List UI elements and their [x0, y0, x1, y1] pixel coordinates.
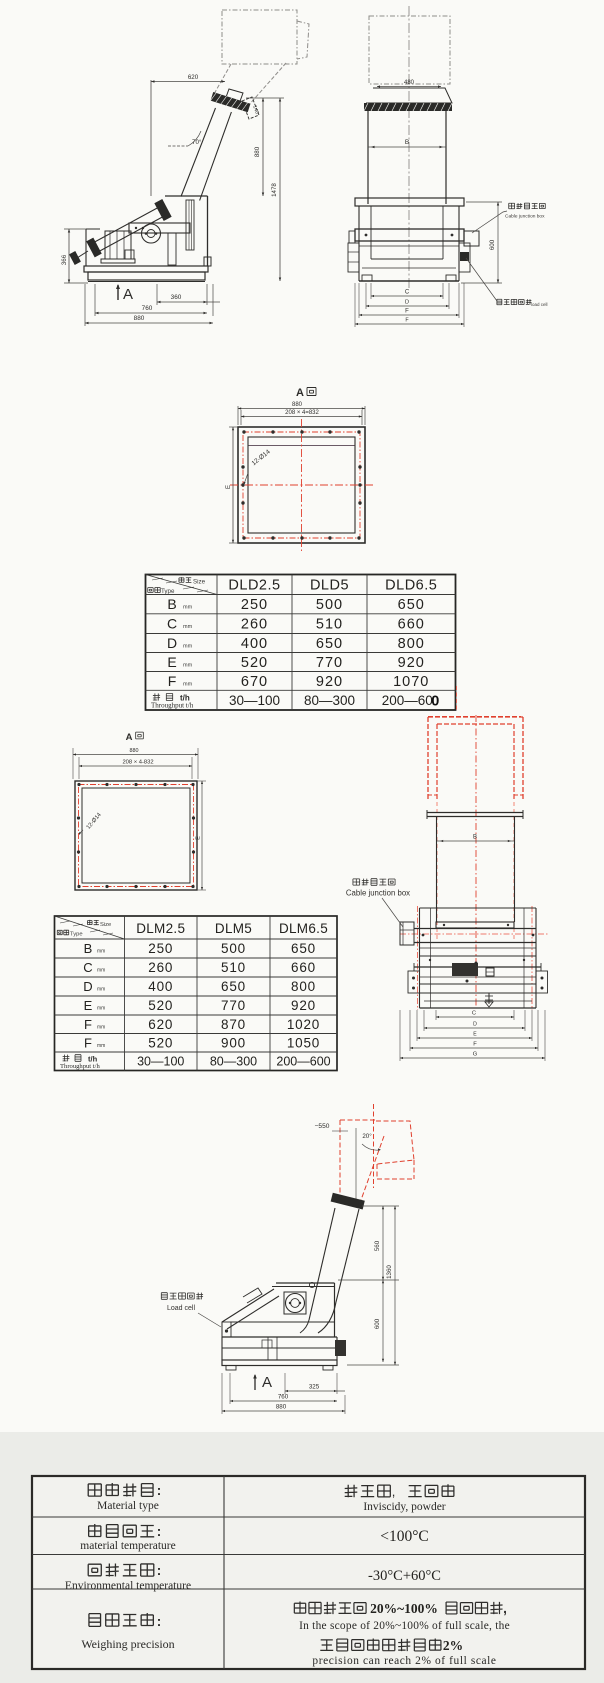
- svg-text:mm: mm: [183, 624, 193, 630]
- svg-text:1360: 1360: [386, 1265, 393, 1279]
- svg-text:80—300: 80—300: [304, 693, 355, 708]
- svg-text:880: 880: [130, 748, 139, 754]
- svg-text:mm: mm: [97, 1024, 105, 1030]
- svg-text:Cable junction box: Cable junction box: [505, 214, 545, 220]
- svg-text:870: 870: [221, 1017, 246, 1032]
- svg-text:30—100: 30—100: [137, 1055, 184, 1069]
- svg-text:mm: mm: [97, 1043, 105, 1049]
- svg-text:Size: Size: [193, 579, 206, 586]
- svg-text:B: B: [405, 139, 409, 146]
- svg-text:650: 650: [398, 597, 425, 613]
- svg-text:E: E: [473, 1032, 477, 1038]
- svg-text:G: G: [473, 1052, 478, 1058]
- svg-text:500: 500: [221, 941, 246, 956]
- svg-text:325: 325: [309, 1384, 320, 1391]
- svg-text:650: 650: [316, 636, 343, 652]
- svg-text::: :: [157, 1563, 162, 1578]
- svg-text:Throughput t/h: Throughput t/h: [60, 1063, 100, 1070]
- svg-text:208 × 4=832: 208 × 4=832: [285, 410, 319, 416]
- svg-text:mm: mm: [183, 644, 193, 650]
- svg-text:600: 600: [489, 239, 496, 250]
- svg-text:material temperature: material temperature: [80, 1540, 175, 1552]
- svg-text:mm: mm: [97, 987, 105, 993]
- svg-text:620: 620: [188, 74, 199, 81]
- svg-text:E: E: [84, 998, 93, 1013]
- svg-text:mm: mm: [97, 968, 105, 974]
- svg-text:510: 510: [316, 617, 343, 633]
- svg-text:DLM2.5: DLM2.5: [136, 921, 185, 936]
- svg-text:510: 510: [221, 960, 246, 975]
- svg-text:360: 360: [171, 294, 182, 301]
- svg-text:,: ,: [392, 1484, 396, 1499]
- svg-text:1020: 1020: [287, 1017, 320, 1032]
- svg-text:Size: Size: [100, 922, 111, 928]
- svg-text:366: 366: [61, 254, 68, 265]
- svg-text:,: ,: [503, 1601, 507, 1616]
- svg-text:D: D: [83, 979, 92, 994]
- svg-text:920: 920: [398, 655, 425, 671]
- svg-text:<100°C: <100°C: [380, 1528, 429, 1545]
- svg-text:B: B: [84, 941, 93, 956]
- svg-text:520: 520: [241, 655, 268, 671]
- svg-text::: :: [157, 1614, 162, 1629]
- svg-text:B: B: [167, 596, 176, 612]
- svg-text:600: 600: [374, 1318, 381, 1329]
- svg-text:200—60: 200—60: [382, 693, 433, 708]
- svg-text:900: 900: [221, 1035, 246, 1050]
- svg-text:660: 660: [398, 617, 425, 633]
- svg-text:660: 660: [291, 960, 316, 975]
- svg-text:D: D: [405, 300, 409, 306]
- svg-text:E: E: [196, 836, 202, 840]
- svg-text:A: A: [123, 286, 133, 303]
- svg-text:800: 800: [291, 979, 316, 994]
- svg-text:E: E: [226, 485, 232, 489]
- svg-text:260: 260: [148, 960, 173, 975]
- svg-text:DLD2.5: DLD2.5: [228, 578, 280, 594]
- svg-text:400: 400: [241, 636, 268, 652]
- svg-text:−550: −550: [315, 1123, 330, 1130]
- svg-text:A: A: [262, 1374, 272, 1391]
- svg-text:500: 500: [316, 597, 343, 613]
- svg-text:F: F: [84, 1035, 92, 1050]
- svg-text:650: 650: [291, 941, 316, 956]
- svg-text:precision can reach 2% of: precision can reach 2% of full scale: [312, 1655, 496, 1667]
- svg-text:Material type: Material type: [97, 1500, 159, 1512]
- svg-text:C: C: [405, 290, 410, 296]
- svg-text:Throughput t/h: Throughput t/h: [151, 702, 194, 710]
- svg-text:DLM5: DLM5: [215, 921, 252, 936]
- svg-text:C: C: [83, 960, 92, 975]
- svg-text:mm: mm: [183, 681, 193, 687]
- svg-text:F: F: [168, 673, 177, 689]
- svg-text:-30°C+60°C: -30°C+60°C: [368, 1568, 441, 1584]
- svg-text:DLM6.5: DLM6.5: [279, 921, 328, 936]
- svg-text:DLD5: DLD5: [310, 578, 349, 594]
- svg-text:A: A: [296, 387, 304, 399]
- svg-text:880: 880: [292, 402, 303, 408]
- svg-text:670: 670: [241, 674, 268, 690]
- svg-text:DLD6.5: DLD6.5: [385, 578, 437, 594]
- svg-text:770: 770: [316, 655, 343, 671]
- svg-text:Inviscidy, powder: Inviscidy, powder: [363, 1501, 445, 1513]
- svg-text:20°: 20°: [362, 1133, 372, 1140]
- svg-text:B: B: [473, 835, 477, 841]
- svg-text:770: 770: [221, 998, 246, 1013]
- svg-text:2%: 2%: [443, 1638, 463, 1653]
- svg-text:520: 520: [148, 998, 173, 1013]
- svg-text:260: 260: [241, 617, 268, 633]
- svg-text:mm: mm: [183, 663, 193, 669]
- svg-text::: :: [157, 1524, 162, 1539]
- svg-text:A: A: [126, 732, 133, 743]
- svg-text:F: F: [473, 1042, 477, 1048]
- svg-text:760: 760: [278, 1394, 289, 1401]
- svg-text:620: 620: [148, 1017, 173, 1032]
- svg-text:1070: 1070: [393, 674, 429, 690]
- svg-text:20%~100%: 20%~100%: [370, 1601, 438, 1616]
- svg-text:250: 250: [148, 941, 173, 956]
- svg-text:480: 480: [404, 80, 415, 86]
- svg-text:C: C: [472, 1011, 476, 1017]
- svg-text:In the scope of 20%~100% of f: In the scope of 20%~100% of full scale, …: [299, 1620, 510, 1632]
- svg-text:400: 400: [148, 979, 173, 994]
- svg-text:Type: Type: [70, 932, 83, 938]
- svg-text:load cell: load cell: [531, 302, 548, 307]
- svg-text:F: F: [405, 309, 409, 315]
- svg-text:1478: 1478: [271, 183, 278, 197]
- svg-text:880: 880: [276, 1404, 287, 1411]
- svg-text:F: F: [84, 1017, 92, 1032]
- svg-text:1050: 1050: [287, 1035, 320, 1050]
- svg-text:mm: mm: [97, 949, 105, 955]
- svg-text::: :: [157, 1483, 162, 1498]
- svg-text:880: 880: [134, 315, 145, 322]
- svg-text:200—600: 200—600: [276, 1055, 330, 1069]
- svg-text:E: E: [167, 654, 176, 670]
- svg-text:880: 880: [254, 146, 261, 157]
- svg-text:560: 560: [374, 1240, 381, 1251]
- svg-text:208 × 4-832: 208 × 4-832: [122, 760, 153, 766]
- svg-text:Type: Type: [161, 588, 175, 595]
- svg-text:920: 920: [316, 674, 343, 690]
- svg-text:Weighing precision: Weighing precision: [81, 1637, 174, 1651]
- svg-text:520: 520: [148, 1035, 173, 1050]
- svg-text:Cable junction box: Cable junction box: [346, 889, 410, 898]
- svg-text:D: D: [473, 1022, 477, 1028]
- svg-text:0: 0: [431, 694, 439, 710]
- svg-text:920: 920: [291, 998, 316, 1013]
- svg-text:30—100: 30—100: [229, 693, 280, 708]
- svg-text:C: C: [167, 616, 177, 632]
- svg-text:D: D: [167, 635, 177, 651]
- svg-text:mm: mm: [97, 1006, 105, 1012]
- svg-text:Load cell: Load cell: [167, 1305, 195, 1312]
- svg-text:800: 800: [398, 636, 425, 652]
- svg-text:Environmental temperature: Environmental temperature: [65, 1580, 191, 1592]
- svg-text:mm: mm: [183, 605, 193, 611]
- svg-text:760: 760: [142, 305, 153, 312]
- svg-text:80—300: 80—300: [210, 1055, 257, 1069]
- svg-text:650: 650: [221, 979, 246, 994]
- svg-text:250: 250: [241, 597, 268, 613]
